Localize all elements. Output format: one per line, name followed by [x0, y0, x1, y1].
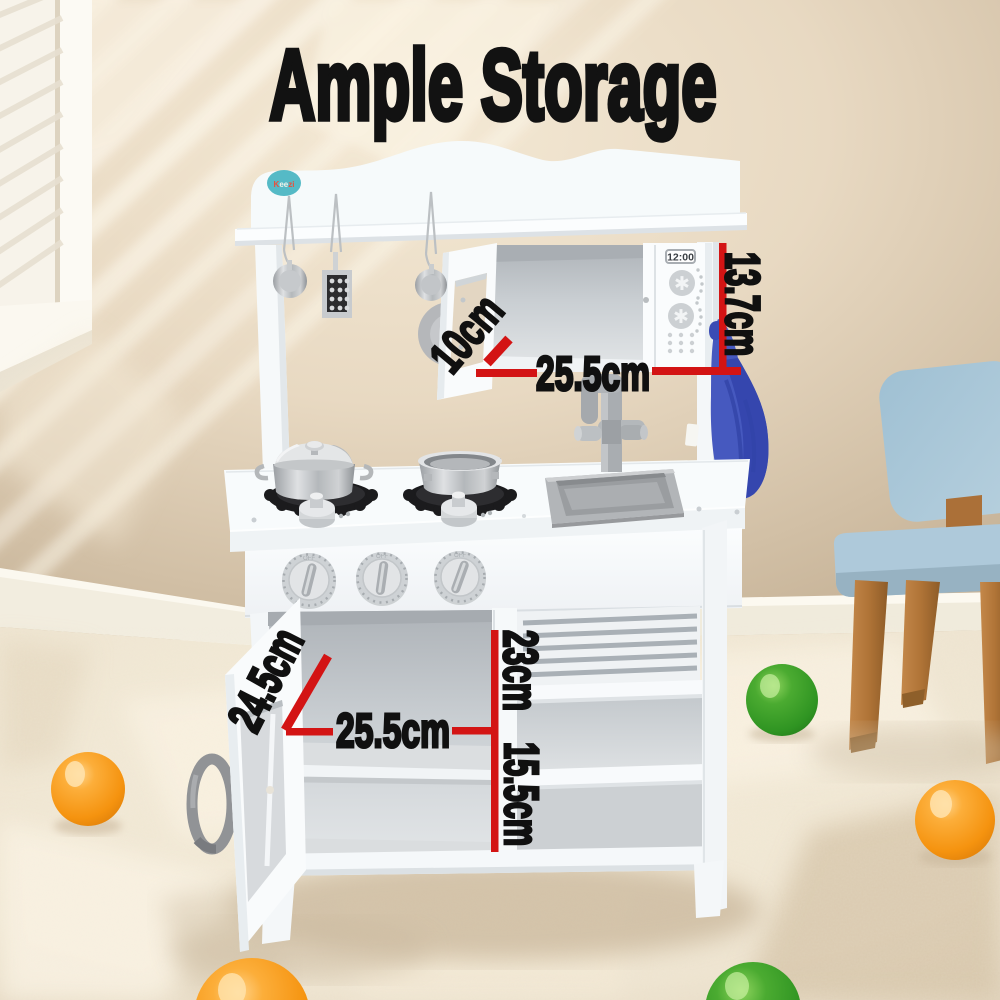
svg-text:13.7cm: 13.7cm — [715, 252, 769, 356]
svg-text:25.5cm: 25.5cm — [336, 703, 450, 757]
svg-text:✱: ✱ — [674, 274, 690, 295]
svg-text:OFF: OFF — [303, 556, 315, 562]
svg-text:✱: ✱ — [673, 307, 689, 328]
svg-text:OFF: OFF — [454, 553, 466, 559]
svg-text:12:00: 12:00 — [667, 252, 694, 264]
svg-text:Ample Storage: Ample Storage — [269, 30, 716, 141]
svg-text:23cm: 23cm — [493, 630, 547, 711]
svg-text:25.5cm: 25.5cm — [536, 346, 650, 400]
svg-text:15.5cm: 15.5cm — [494, 742, 548, 846]
svg-text:Keezi: Keezi — [274, 180, 295, 189]
svg-text:OFF: OFF — [376, 554, 388, 560]
